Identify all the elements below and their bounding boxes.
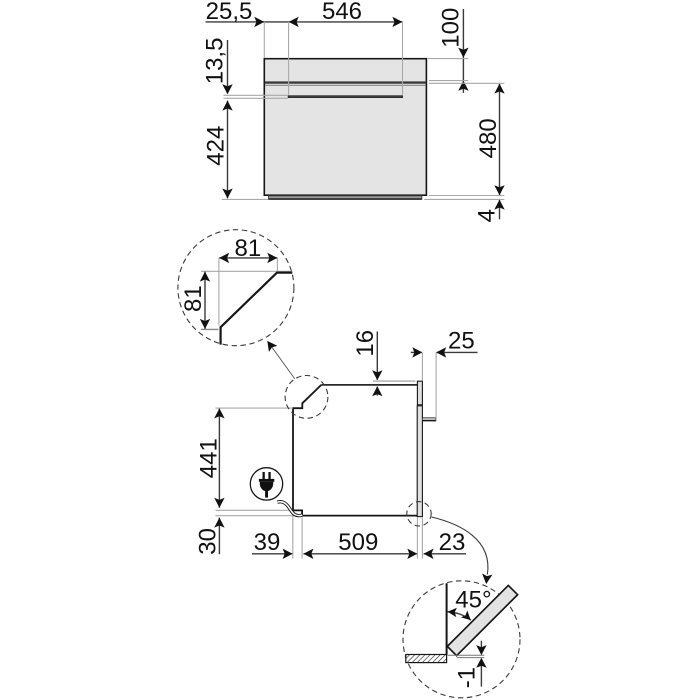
svg-text:45°: 45° xyxy=(455,587,491,614)
svg-text:16: 16 xyxy=(352,330,379,357)
svg-text:13,5: 13,5 xyxy=(202,38,229,85)
svg-text:30: 30 xyxy=(194,528,221,555)
svg-text:25: 25 xyxy=(448,327,475,354)
svg-text:100: 100 xyxy=(438,8,465,48)
svg-text:39: 39 xyxy=(254,529,281,556)
svg-text:81: 81 xyxy=(235,235,262,262)
svg-text:4: 4 xyxy=(474,209,501,222)
svg-text:480: 480 xyxy=(475,118,502,158)
svg-text:424: 424 xyxy=(202,126,229,166)
svg-text:81: 81 xyxy=(180,285,207,312)
svg-text:441: 441 xyxy=(195,438,222,478)
svg-text:509: 509 xyxy=(338,529,378,556)
svg-text:546: 546 xyxy=(322,0,362,25)
svg-text:25,5: 25,5 xyxy=(206,0,253,25)
svg-text:23: 23 xyxy=(439,529,466,556)
svg-text:-1: -1 xyxy=(454,667,481,688)
